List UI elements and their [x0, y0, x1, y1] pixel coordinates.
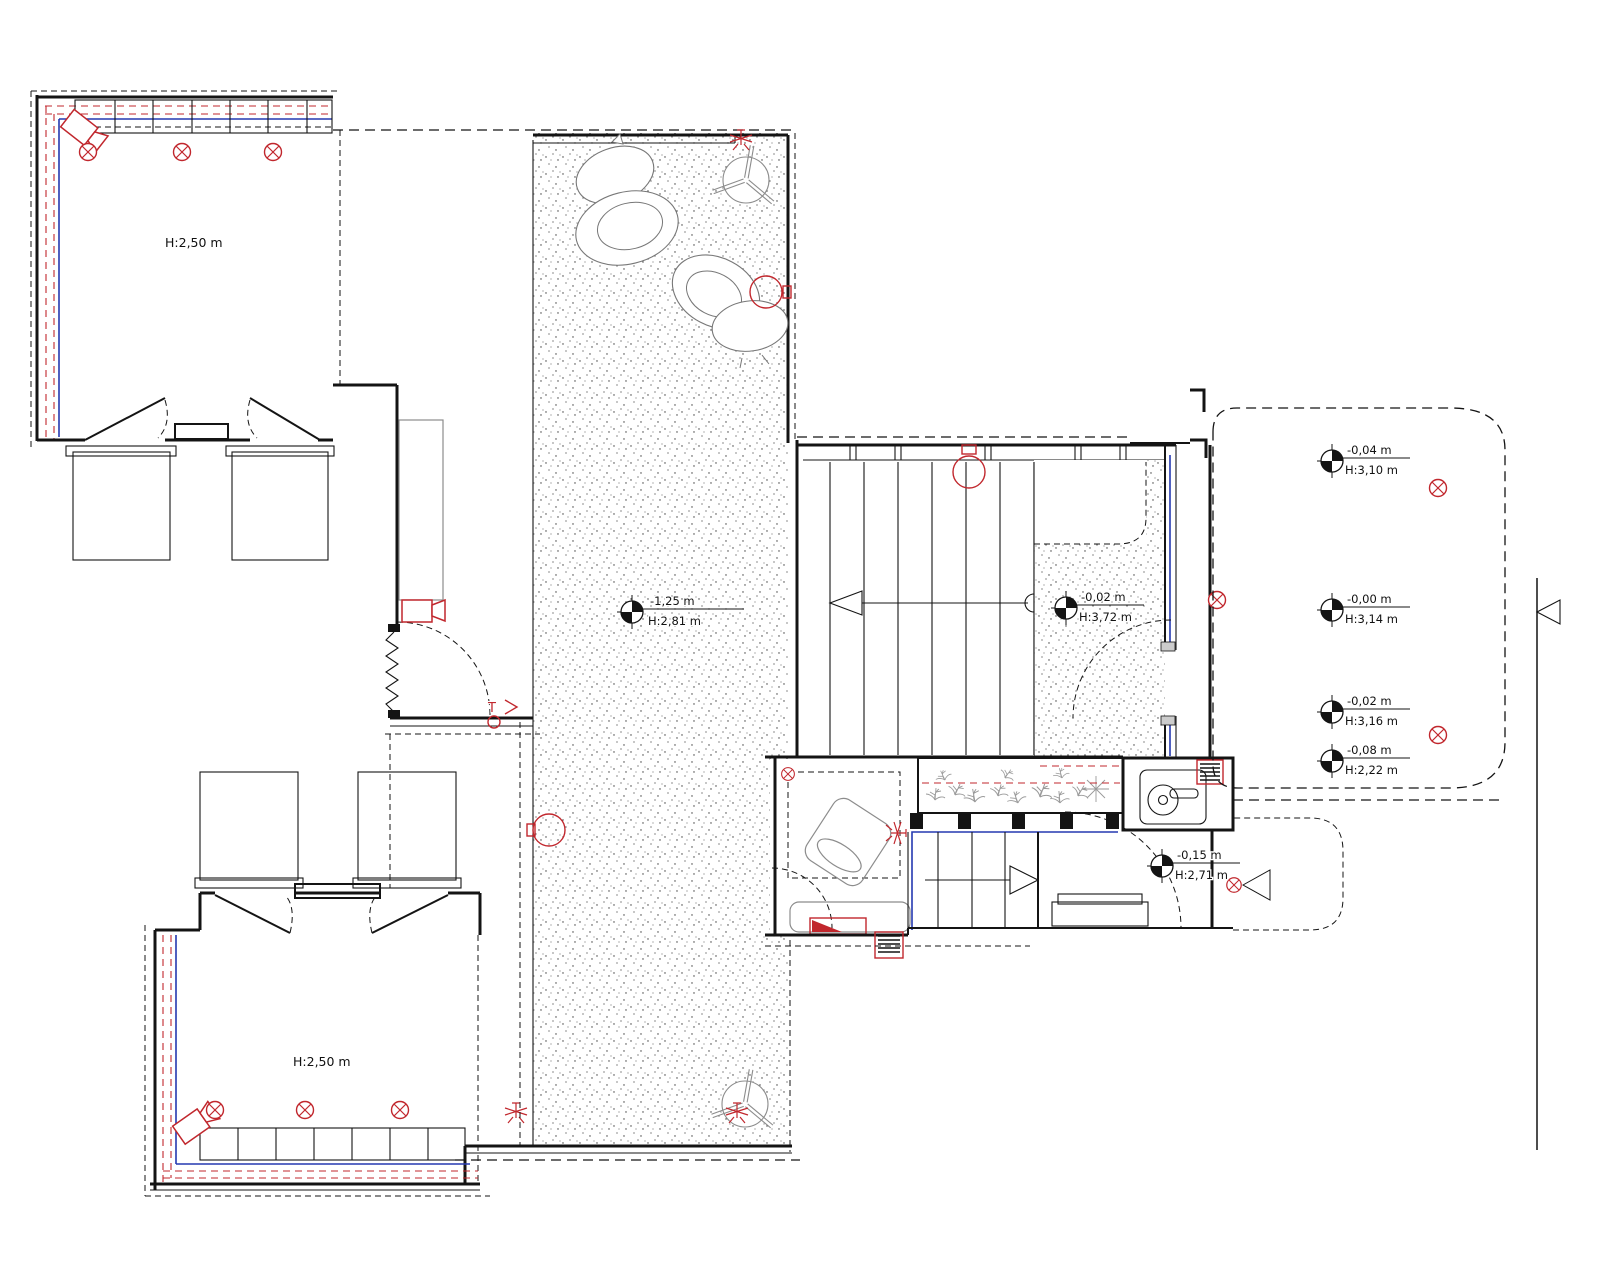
height-value: H:2,22 m: [1345, 763, 1398, 777]
level-value: -0,04 m: [1347, 443, 1392, 457]
door-frame: [1161, 642, 1175, 651]
security-camera-icon: [402, 600, 445, 622]
ceiling-light-icon: [297, 1102, 314, 1119]
height-value: H:2,71 m: [1175, 868, 1228, 882]
ceiling-light-icon: [174, 144, 191, 161]
room-height-label: H:2,50 m: [293, 1054, 351, 1069]
floor-plan-canvas: -1,25 m H:2,81 m H:2,50 m: [0, 0, 1600, 1280]
height-value: H:3,16 m: [1345, 714, 1398, 728]
door-jamb: [388, 624, 400, 632]
doormat: [1034, 460, 1146, 544]
ceiling-light-icon: [207, 1102, 224, 1119]
level-value: -0,15 m: [1177, 848, 1222, 862]
ceiling-light-icon: [80, 144, 97, 161]
tag-label: T: [487, 701, 496, 716]
drawing-sheet: -1,25 m H:2,81 m H:2,50 m: [0, 0, 1600, 1280]
door-frame: [1161, 716, 1175, 725]
level-value: -0,02 m: [1081, 590, 1126, 604]
paper-background: [0, 0, 1600, 1280]
height-value: H:2,81 m: [648, 614, 701, 628]
height-value: H:3,14 m: [1345, 612, 1398, 626]
height-value: H:3,72 m: [1079, 610, 1132, 624]
level-value: -1,25 m: [650, 594, 695, 608]
wall-vent-grille: [1197, 760, 1223, 784]
ceiling-light-icon: [1430, 480, 1447, 497]
level-value: -0,00 m: [1347, 592, 1392, 606]
ceiling-light-icon: [782, 768, 795, 781]
level-value: -0,02 m: [1347, 694, 1392, 708]
level-value: -0,08 m: [1347, 743, 1392, 757]
ceiling-light-icon: [1209, 592, 1226, 609]
ceiling-light-icon: [265, 144, 282, 161]
room-height-label: H:2,50 m: [165, 235, 223, 250]
height-value: H:3,10 m: [1345, 463, 1398, 477]
ceiling-light-icon: [1430, 727, 1447, 744]
ceiling-light-icon: [392, 1102, 409, 1119]
